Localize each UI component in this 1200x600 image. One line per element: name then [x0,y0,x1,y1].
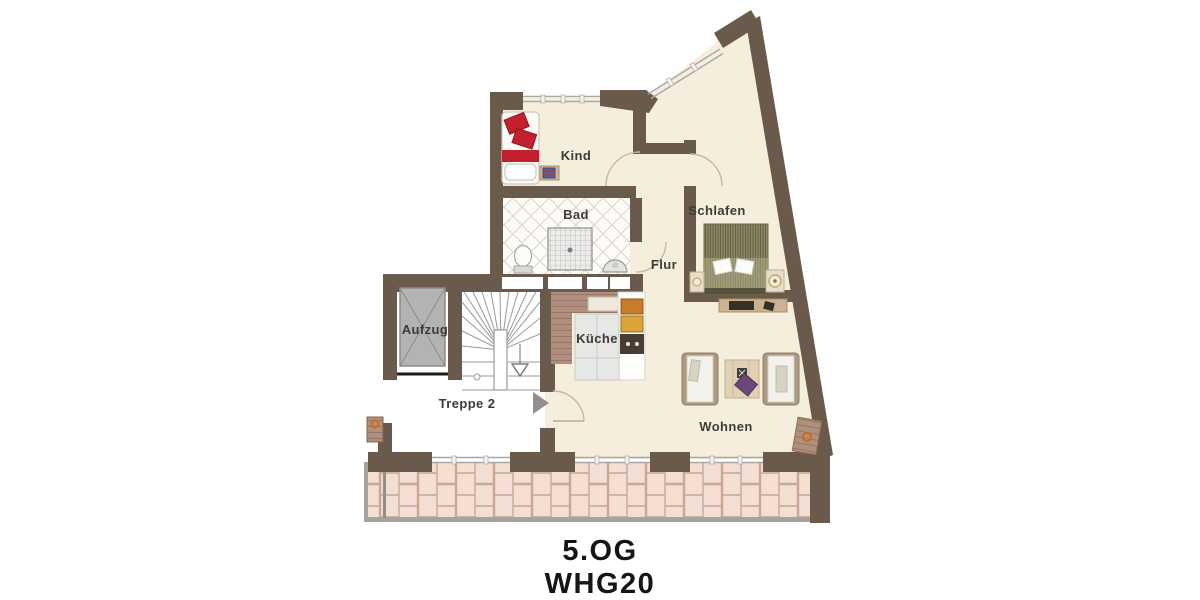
wall-schlafen-pillar [684,140,696,154]
kitchen-stove [620,334,644,354]
terrace-edge-left [364,462,368,522]
staircase [462,292,540,390]
wall-elevator-left [383,274,397,380]
plan-title: 5.OG WHG20 [545,535,656,600]
wall-bad-right [630,198,642,242]
wall-niche [587,277,608,289]
toilet [515,246,532,267]
room-label-kueche: Küche [576,331,618,346]
window-tick [484,456,488,464]
kitchen-sink [588,297,618,311]
window-bottom-1 [432,458,510,463]
window-tick [595,456,599,464]
floor-plan-page: Kind Bad Schlafen Flur Küche Aufzug Trep… [0,0,1200,600]
kind-deco [543,168,555,178]
wall-entrance-lower [540,428,555,454]
stair-post [474,374,480,380]
wall-elevator-right [448,274,462,380]
terrace-edge-bottom [364,517,830,522]
stove-knob [626,342,630,346]
kitchen-board-1 [621,299,643,314]
stairs-direction-arrow [512,364,528,376]
unit-title: WHG20 [545,568,656,600]
sink-drain [612,262,618,268]
bed-pillow-right [735,259,754,275]
lamp-left [693,278,701,286]
room-label-schlafen: Schlafen [688,203,745,218]
wall-bottom-pillar-1 [368,452,432,472]
tv [729,301,754,310]
wall-niche [502,277,543,289]
window-tick [452,456,456,464]
stair-newel [494,330,507,390]
armchair-right-cushion [776,366,787,392]
kind-headboard [505,164,536,180]
lamp-right-center [773,279,777,283]
wall-bottom-pillar-3 [650,452,690,472]
bed-headboard [704,288,768,294]
floor-title: 5.OG [562,535,637,567]
shower-drain [568,248,573,253]
window-tick [710,456,714,464]
wall-bottom-pillar-2 [510,452,575,472]
room-label-wohnen: Wohnen [699,419,752,434]
room-label-aufzug: Aufzug [402,322,448,337]
window-tick [625,456,629,464]
window-tick [541,95,545,103]
room-label-bad: Bad [563,207,589,222]
room-label-treppe: Treppe 2 [439,396,496,411]
window-tick [561,95,565,103]
room-label-flur: Flur [651,257,677,272]
kitchen-board-2 [621,316,643,332]
window-tick [580,95,584,103]
room-label-kind: Kind [561,148,591,163]
sideboard-right [792,417,822,455]
wall-niche [610,277,630,289]
bed-pillow-left [713,258,732,274]
floor-plan: Kind Bad Schlafen Flur Küche Aufzug Trep… [0,0,1200,600]
terrace [364,462,830,522]
window-tick [738,456,742,464]
toilet-tank [514,266,532,273]
terrace-divider [383,468,386,518]
terrace-tiles [366,462,822,520]
stove-knob [635,342,639,346]
kind-bed-blanket [502,150,539,162]
wall-niche [548,277,582,289]
wall-kind-bad [490,186,636,198]
